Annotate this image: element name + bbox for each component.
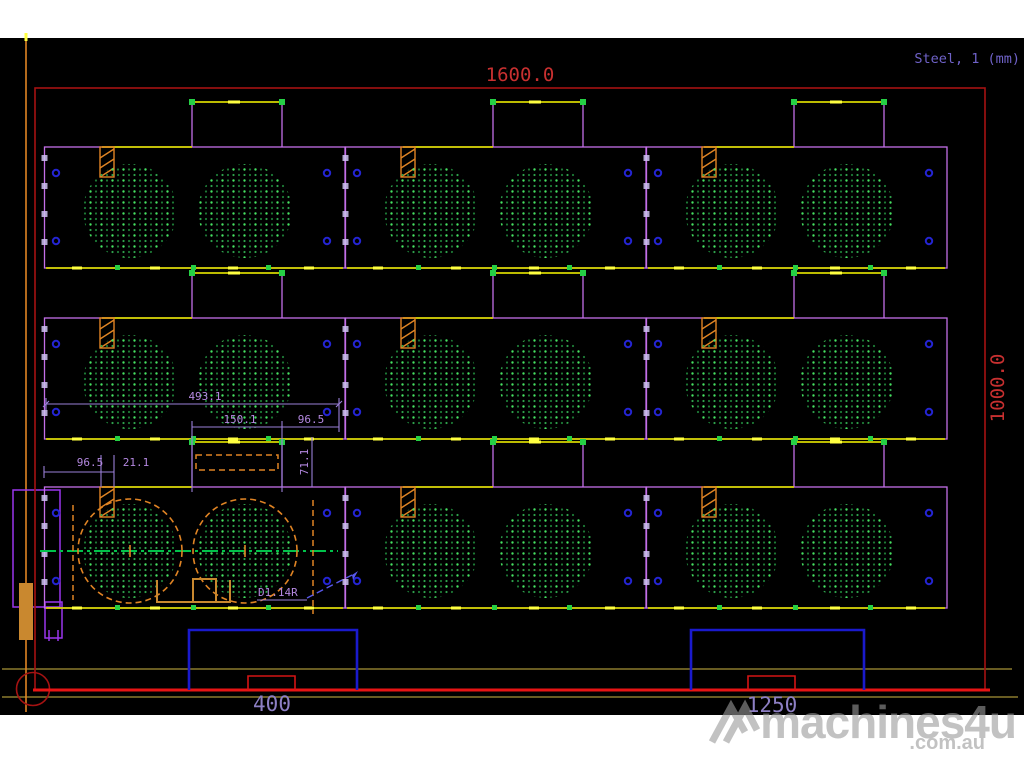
watermark-tld: .com.au xyxy=(909,732,985,754)
dim-tab-height: 71.1 xyxy=(298,449,311,476)
dim-tab-offset: 96.5 xyxy=(298,413,325,426)
clamp-1-position-label: 400 xyxy=(253,692,291,716)
dim-tab-width: 150.1 xyxy=(223,413,256,426)
dim-clamp-offset: 96.5 xyxy=(77,456,104,469)
hole-diameter-note: D1.14R xyxy=(258,586,298,599)
material-info-label: Steel, 1 (mm) xyxy=(914,51,1020,67)
dim-clamp-width: 21.1 xyxy=(123,456,150,469)
sheet-height-label: 1000.0 xyxy=(987,354,1009,423)
sheet-width-label: 1600.0 xyxy=(486,64,555,86)
application-window: 1600.0 1000.0 493.1 150.1 96.5 xyxy=(0,0,1024,768)
dim-part-width: 493.1 xyxy=(188,390,221,403)
cad-viewport[interactable]: 1600.0 1000.0 493.1 150.1 96.5 xyxy=(0,0,1024,768)
